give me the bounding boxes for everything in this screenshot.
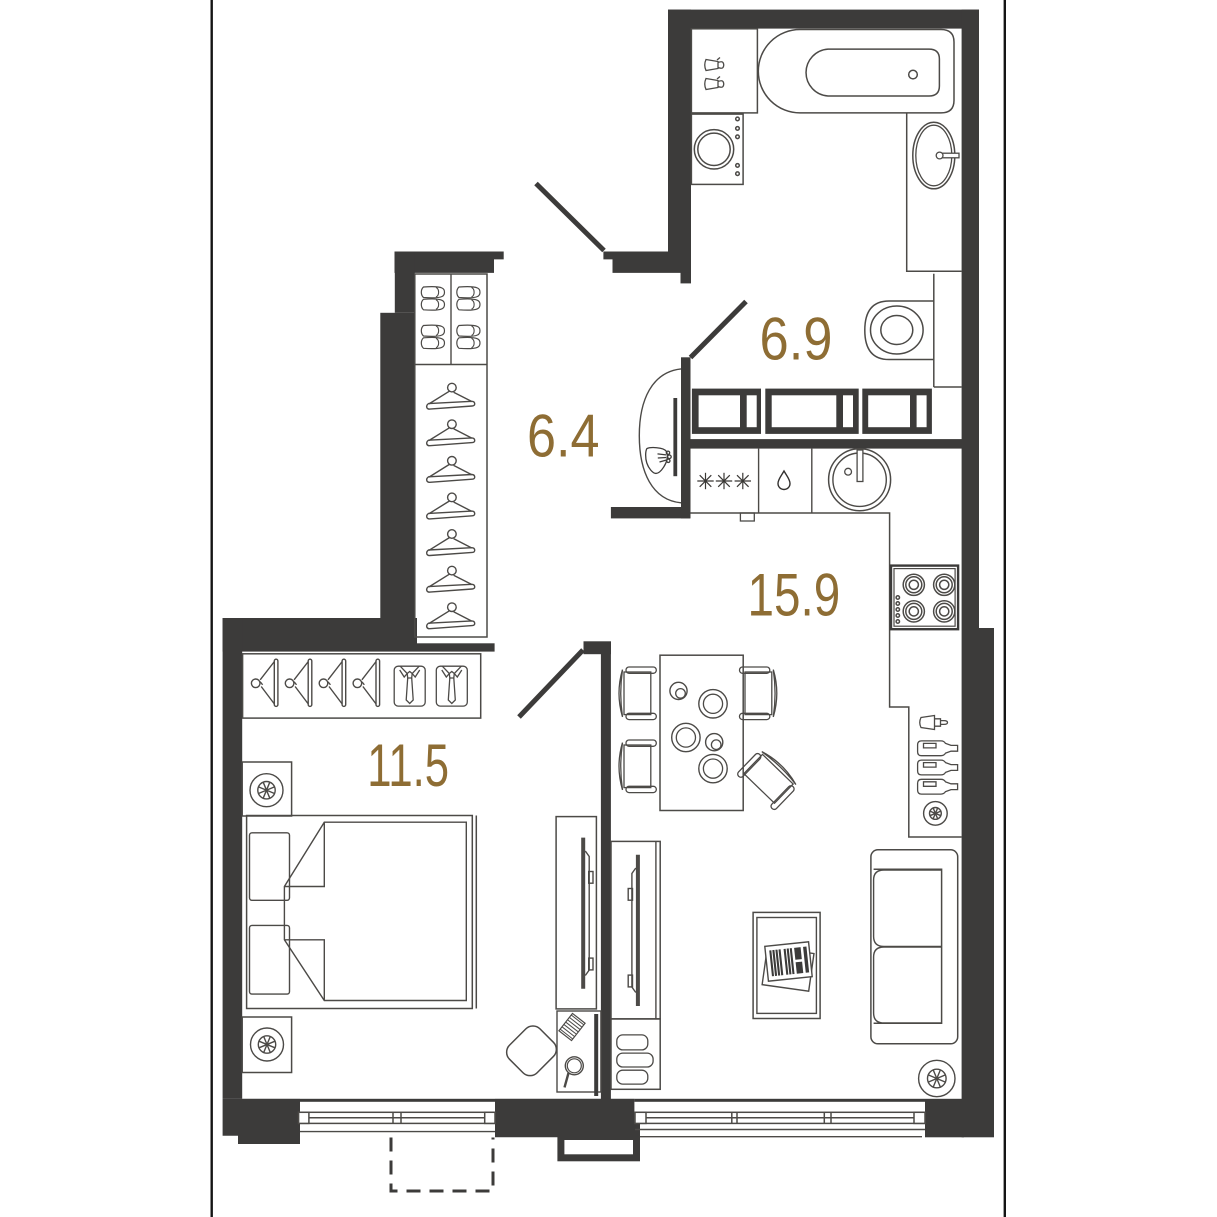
svg-text:11.5: 11.5 [367, 732, 449, 799]
svg-text:15.9: 15.9 [748, 562, 841, 629]
svg-text:6.9: 6.9 [760, 306, 833, 373]
svg-text:6.4: 6.4 [527, 403, 600, 470]
